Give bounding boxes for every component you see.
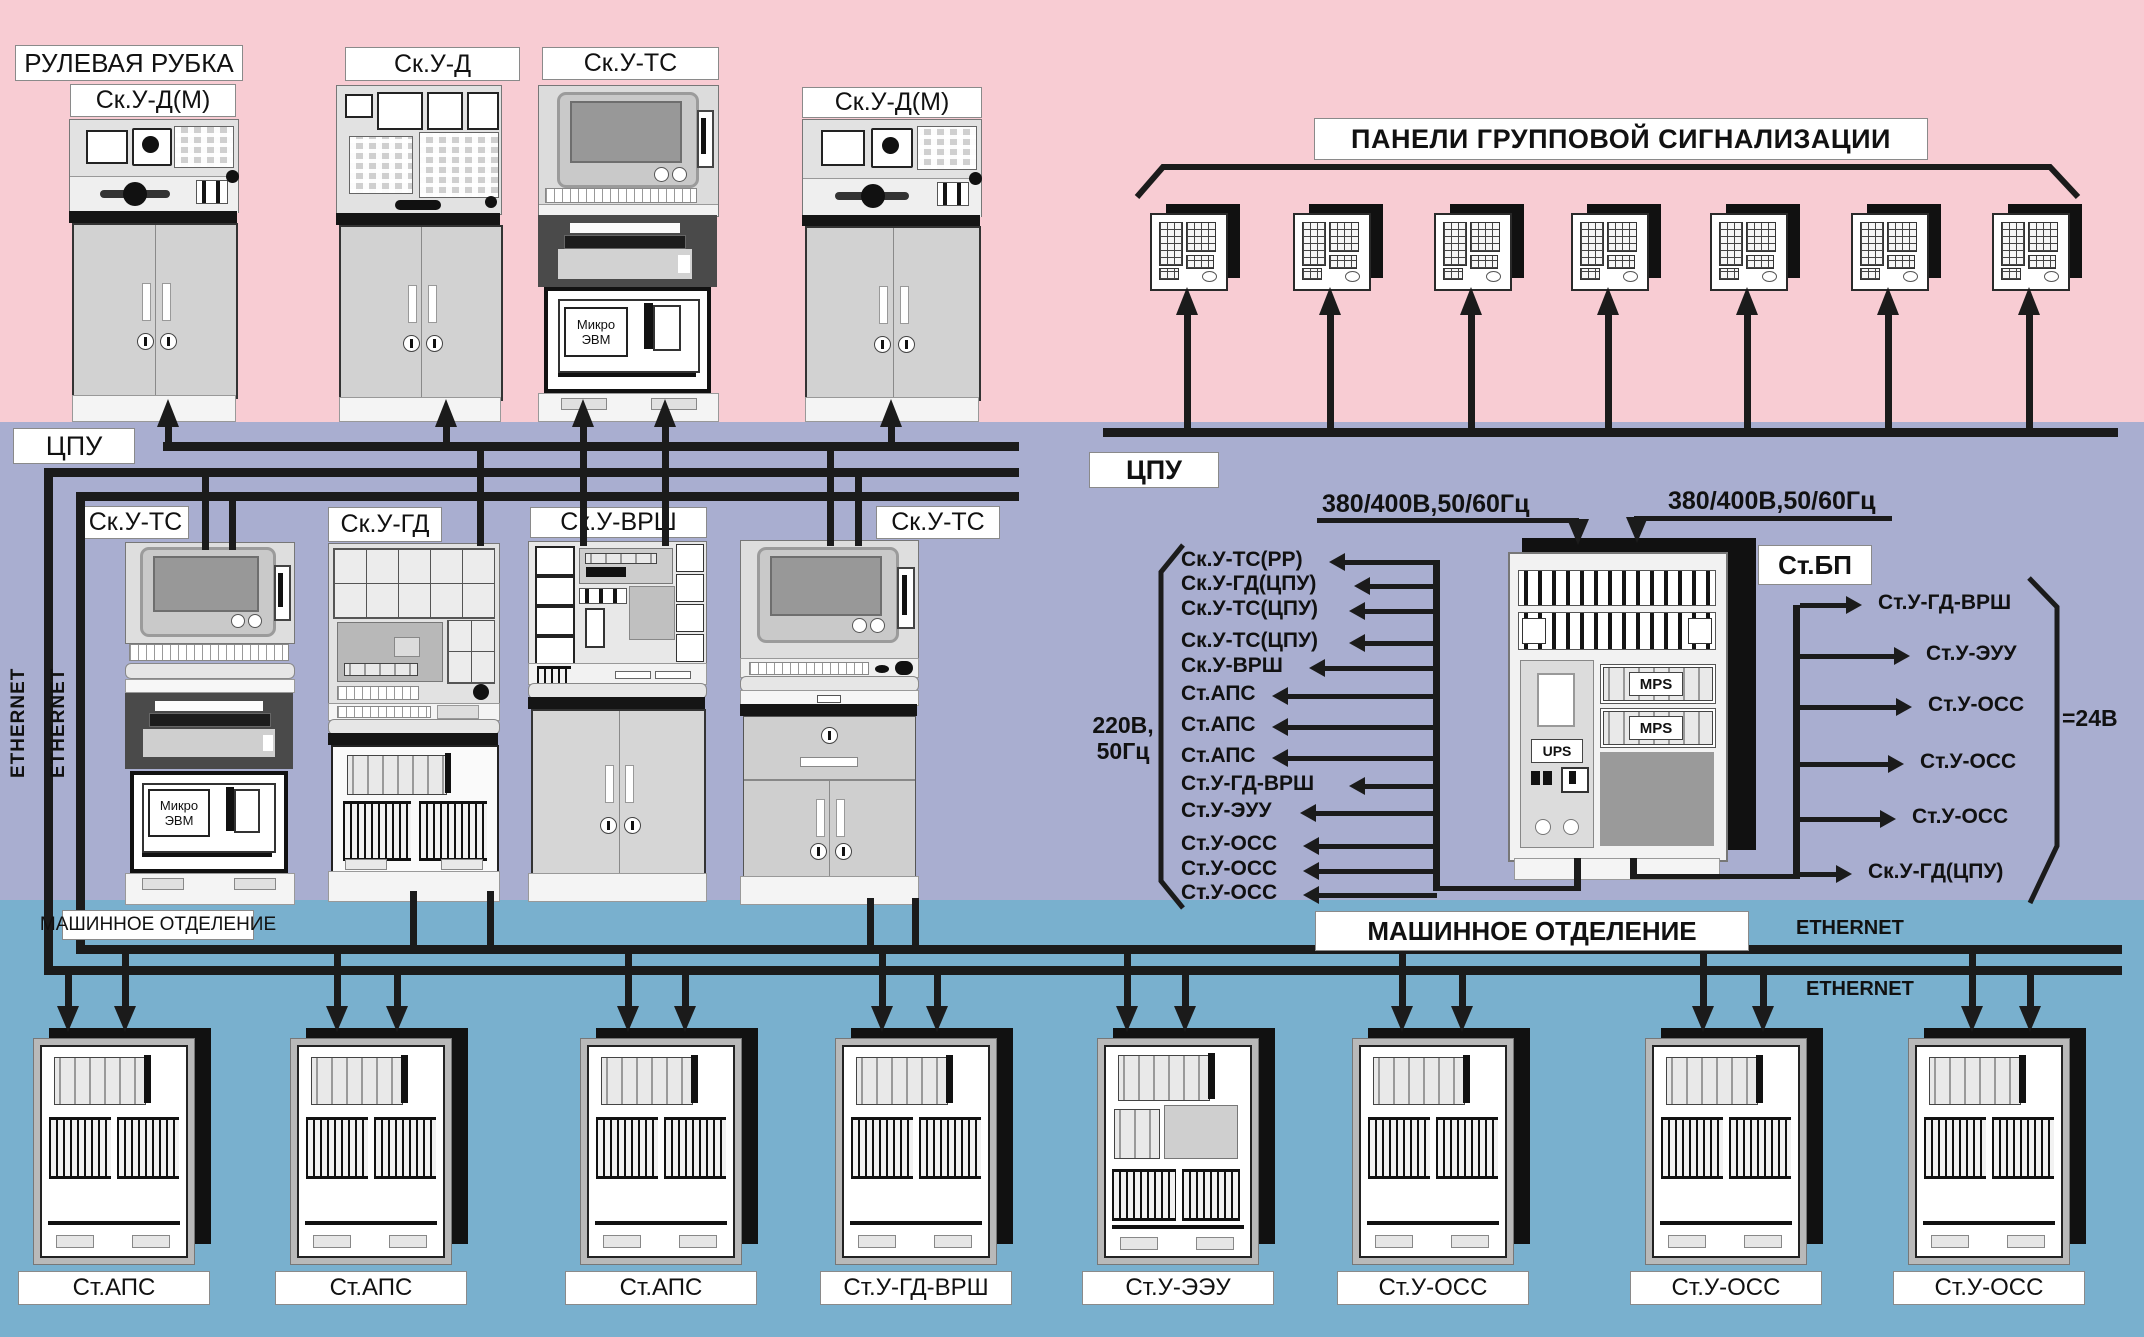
decor-shape — [1762, 271, 1777, 282]
console-sku-ts-cpu-2: Ск.У-ТС — [740, 506, 917, 903]
decor-shape — [1104, 1045, 1252, 1258]
arrow-left-icon — [1300, 804, 1316, 822]
decor-shape — [328, 733, 498, 745]
micro-evm-label: Микро ЭВМ — [148, 789, 210, 837]
decor-shape — [528, 663, 707, 685]
decor-shape — [895, 661, 913, 675]
arrow-left-icon — [1303, 886, 1319, 904]
decor-shape — [337, 686, 419, 700]
breaker-row — [1518, 612, 1716, 650]
decor-shape — [1744, 1235, 1782, 1248]
decor-shape — [1746, 255, 1774, 269]
decor-shape — [1719, 268, 1739, 280]
arrow-up-icon — [1460, 287, 1482, 315]
connector-line — [443, 424, 450, 451]
connector-line — [65, 973, 72, 1006]
decor-shape — [691, 1055, 698, 1103]
decor-shape — [1329, 222, 1359, 252]
arrow-up-icon — [1176, 287, 1198, 315]
wheelhouse-section — [0, 0, 2144, 422]
key-switch-icon — [1688, 618, 1712, 644]
console-label: Ск.У-Д — [345, 47, 520, 81]
console-cabinet — [743, 716, 916, 878]
decor-shape — [528, 873, 707, 902]
arrow-right-icon — [1880, 810, 1896, 828]
decor-shape — [1710, 213, 1788, 291]
decor-shape — [821, 130, 865, 166]
engine-cabinet-7 — [1645, 1028, 1845, 1278]
power-feed-line — [1634, 516, 1892, 521]
ac-voltage-label: 220В, 50Гц — [1086, 712, 1160, 764]
decor-shape — [850, 1221, 982, 1225]
arrow-left-icon — [1354, 577, 1370, 595]
decor-shape — [389, 1235, 427, 1248]
decor-shape — [585, 553, 657, 564]
engine-cabinet-label: Ст.У-ГД-ВРШ — [820, 1271, 1012, 1305]
monitor-screen — [570, 101, 682, 163]
decor-shape — [33, 1038, 195, 1265]
decor-shape — [234, 878, 276, 890]
arrow-down-icon — [114, 1006, 136, 1032]
decor-shape — [1569, 771, 1576, 784]
ac-output-label: Ст.У-ОСС — [1181, 857, 1277, 881]
decor-shape — [125, 873, 295, 905]
connector-line — [662, 442, 669, 546]
arrow-up-icon — [572, 399, 594, 427]
decor-shape — [528, 697, 705, 709]
arrow-up-icon — [1736, 287, 1758, 315]
decor-shape — [290, 1038, 452, 1265]
knob-icon — [969, 172, 982, 185]
alarm-panel-5 — [1710, 204, 1800, 296]
console-rack-cabinet — [331, 745, 499, 875]
rack-unit — [1666, 1057, 1758, 1105]
keyboard-block — [419, 132, 499, 198]
monitor — [557, 92, 699, 188]
decor-shape — [934, 1235, 972, 1248]
indicator — [676, 604, 704, 632]
key-switch-icon — [1522, 618, 1546, 644]
decor-shape — [672, 167, 687, 182]
rack-unit — [1373, 1057, 1465, 1105]
connector-line — [1364, 784, 1437, 789]
decor-shape — [1302, 222, 1326, 266]
connector-line — [625, 951, 632, 1006]
decor-shape — [1563, 819, 1579, 835]
ac-output-label: Ст.У-ЭУУ — [1181, 799, 1272, 823]
decor-shape — [313, 1235, 351, 1248]
engine-cabinet-label: Ст.У-ОСС — [1630, 1271, 1822, 1305]
ac-output-label: Ск.У-ТС(ЦПУ) — [1181, 597, 1318, 621]
engine-cabinet-label: Ст.АПС — [565, 1271, 757, 1305]
console-display-panel — [538, 85, 719, 217]
alarm-panel-7 — [1992, 204, 2082, 296]
engine-cabinet-label: Ст.У-ОСС — [1337, 1271, 1529, 1305]
decor-shape — [467, 92, 499, 130]
decor-shape — [2001, 222, 2025, 266]
arrow-down-icon — [1752, 1006, 1774, 1032]
engine-bus-line-1 — [80, 945, 2122, 954]
connector-line — [487, 891, 494, 951]
card-cage — [664, 1117, 726, 1179]
connector-line — [1287, 694, 1437, 699]
decor-shape — [580, 1038, 742, 1265]
decor-shape — [1931, 1235, 1969, 1248]
connector-line — [1399, 951, 1406, 1006]
arrow-up-icon — [435, 399, 457, 427]
decor-shape — [829, 781, 830, 877]
decor-shape — [1860, 222, 1884, 266]
console-sku-dm-wheelhouse-2: Ск.У-Д(М) — [802, 87, 980, 420]
console-sku-d-wheelhouse: Ск.У-Д — [336, 47, 518, 420]
control-block — [579, 548, 673, 584]
dc-voltage-label: =24В — [2062, 705, 2118, 732]
decor-shape — [2007, 1235, 2045, 1248]
connector-line — [1969, 951, 1976, 1006]
lever-block-icon — [196, 180, 228, 204]
ac-output-label: Ст.У-ГД-ВРШ — [1181, 772, 1314, 796]
decor-shape — [48, 1221, 180, 1225]
decor-shape — [336, 213, 500, 225]
connector-line — [888, 424, 895, 451]
arrow-down-icon — [1116, 1006, 1138, 1032]
arrow-up-icon — [2018, 287, 2040, 315]
decor-shape — [377, 92, 423, 130]
decor-shape — [345, 94, 373, 118]
decor-shape — [654, 167, 669, 182]
dc-output-label: Ст.У-ГД-ВРШ — [1878, 591, 2011, 615]
console-control-panel — [69, 119, 239, 213]
decor-shape — [445, 753, 451, 793]
decor-shape — [1367, 1221, 1499, 1225]
arrow-down-icon — [326, 1006, 348, 1032]
console-cabinet — [72, 223, 238, 399]
console-label: Ск.У-ТС — [82, 506, 189, 539]
rack-unit — [1118, 1055, 1210, 1101]
rack-unit — [1929, 1057, 2021, 1105]
monitor — [140, 547, 276, 637]
connector-line — [682, 973, 689, 1006]
console-cabinet — [805, 226, 981, 401]
connector-line — [1744, 310, 1751, 432]
ethernet-label-cpu-2: ETHERNET — [48, 618, 78, 778]
decor-shape — [1463, 1055, 1470, 1103]
micro-evm-unit: Микро ЭВМ — [130, 771, 288, 873]
decor-shape — [1719, 222, 1743, 266]
monitor-screen — [770, 556, 882, 616]
indicator — [676, 544, 704, 572]
decor-shape — [644, 303, 653, 349]
decor-shape — [234, 789, 260, 833]
decor-shape — [297, 1045, 445, 1258]
decor-shape — [902, 575, 907, 615]
arrow-down-icon — [1391, 1006, 1413, 1032]
console-label: Ск.У-ГД — [328, 507, 442, 542]
card-cage — [1436, 1117, 1498, 1179]
lever-block-icon — [937, 182, 969, 206]
console-sku-gd-cpu: Ск.У-ГД — [328, 505, 498, 900]
micro-evm-unit: Микро ЭВМ — [544, 287, 711, 393]
ac-output-label: Ск.У-ГД(ЦПУ) — [1181, 572, 1316, 596]
card-cage — [919, 1117, 981, 1179]
power-cabinet: UPS MPS MPS — [1508, 552, 1728, 862]
decor-shape — [842, 1045, 990, 1258]
arrow-down-icon — [57, 1006, 79, 1032]
alarm-panel-4 — [1571, 204, 1661, 296]
ac-output-label: Ст.У-ОСС — [1181, 832, 1277, 856]
ac-output-label: Ск.У-ТС(ЦПУ) — [1181, 629, 1318, 653]
decor-shape — [160, 333, 177, 350]
decor-shape — [1851, 213, 1929, 291]
engine-cabinet-label: Ст.У-ЭЭУ — [1082, 1271, 1274, 1305]
decor-shape — [1302, 268, 1322, 280]
decor-shape — [248, 614, 262, 628]
decor-shape — [2019, 1055, 2026, 1103]
decor-shape: ЭВМ — [165, 813, 194, 828]
decor-shape — [2028, 222, 2058, 252]
decor-shape — [428, 285, 437, 323]
decor-shape — [679, 1235, 717, 1248]
decor-shape — [740, 704, 917, 716]
decor-shape — [1543, 771, 1552, 785]
decor-shape — [558, 373, 696, 377]
decor-shape — [535, 576, 575, 606]
decor-shape — [137, 333, 154, 350]
ethernet-label-engine-1: ETHERNET — [1796, 917, 1904, 940]
connector-line — [1437, 886, 1578, 891]
decor-shape — [231, 614, 245, 628]
monitor-screen — [153, 556, 259, 612]
connector-line — [1800, 817, 1880, 822]
decor-shape — [1580, 222, 1604, 266]
console-sku-ts-cpu-1: Ск.У-ТС Микро ЭВМ — [125, 505, 293, 903]
connector-line — [1182, 973, 1189, 1006]
card-cage — [1182, 1169, 1240, 1221]
handwheel-icon — [123, 182, 147, 206]
rack-unit — [601, 1057, 693, 1105]
arrow-down-icon — [871, 1006, 893, 1032]
decor-shape — [1903, 271, 1918, 282]
knob-icon — [473, 684, 489, 700]
connector-line — [1459, 973, 1466, 1006]
engine-cabinet-6 — [1352, 1028, 1552, 1278]
decor-shape — [278, 573, 283, 607]
card-cage — [1661, 1117, 1723, 1179]
rack-unit — [856, 1057, 948, 1105]
decor-shape — [1887, 255, 1915, 269]
dc-output-label: Ст.У-ЭУУ — [1926, 642, 2017, 666]
ups-label: UPS — [1531, 739, 1583, 763]
arrow-up-icon — [1877, 287, 1899, 315]
decor-shape — [852, 618, 867, 633]
engine-bus-line-2 — [48, 966, 2122, 975]
decor-shape — [1164, 1105, 1238, 1159]
decor-shape — [946, 1055, 953, 1103]
decor-shape — [564, 235, 686, 249]
arrow-down-icon — [1692, 1006, 1714, 1032]
connector-line — [1324, 666, 1437, 671]
decor-shape — [586, 567, 626, 577]
card-cage — [306, 1117, 368, 1179]
arrow-down-icon — [1174, 1006, 1196, 1032]
decor-shape — [2001, 268, 2021, 280]
decor-shape — [1623, 271, 1638, 282]
ac-output-label: Ст.АПС — [1181, 713, 1256, 737]
console-sku-dm-wheelhouse-1: Ск.У-Д(М) — [69, 84, 237, 420]
connector-line — [1344, 560, 1437, 565]
connector-line — [1364, 641, 1437, 646]
card-cage — [117, 1117, 179, 1179]
connector-line — [855, 468, 862, 546]
decor-shape — [858, 1235, 896, 1248]
decor-shape — [629, 586, 675, 640]
card-cage — [1992, 1117, 2054, 1179]
cpu-bus-line-3 — [80, 492, 1019, 501]
arrow-down-icon — [1451, 1006, 1473, 1032]
decor-shape — [585, 608, 605, 648]
decor-shape — [1660, 1221, 1792, 1225]
decor-shape — [653, 305, 681, 351]
decor-shape — [1580, 268, 1600, 280]
ac-output-label: Ск.У-ТС(РР) — [1181, 548, 1303, 572]
console-control-panel — [336, 85, 502, 215]
alarm-panel-2 — [1293, 204, 1383, 296]
engine-cabinet-label: Ст.У-ОСС — [1893, 1271, 2085, 1305]
arrow-down-icon — [617, 1006, 639, 1032]
arrow-down-icon — [1626, 517, 1648, 543]
arrow-up-icon — [157, 399, 179, 427]
arrow-up-icon — [1319, 287, 1341, 315]
decor-shape — [1470, 255, 1498, 269]
keyboard — [545, 188, 697, 203]
console-cabinet — [339, 225, 503, 401]
decor-shape — [1443, 222, 1467, 266]
decor-shape — [879, 286, 888, 324]
decor-shape — [345, 859, 387, 870]
connector-line — [229, 492, 236, 550]
button-block — [174, 126, 234, 168]
mps-module-2: MPS — [1600, 708, 1716, 748]
decor-shape — [535, 546, 575, 576]
engine-room-label-big: МАШИННОЕ ОТДЕЛЕНИЕ — [1315, 911, 1749, 951]
decor-shape — [570, 223, 680, 233]
dc-output-label: Ст.У-ОСС — [1912, 805, 2008, 829]
console-control-panel — [802, 119, 982, 217]
mps-module-1: MPS — [1600, 664, 1716, 704]
decor-shape — [144, 1055, 151, 1103]
decor-shape — [1202, 271, 1217, 282]
decor-shape — [1208, 1053, 1215, 1099]
alarm-panel-3 — [1434, 204, 1524, 296]
decor-shape — [162, 283, 171, 321]
decor-shape — [1329, 255, 1357, 269]
decor-shape — [56, 1235, 94, 1248]
alarm-panel-6 — [1851, 204, 1941, 296]
dc-output-label: Ст.У-ОСС — [1928, 693, 2024, 717]
decor-shape — [1451, 1235, 1489, 1248]
arrow-right-icon — [1894, 647, 1910, 665]
decor-shape — [740, 658, 919, 678]
decor-shape — [125, 663, 295, 679]
decor-shape — [678, 255, 690, 273]
decor-shape — [132, 1235, 170, 1248]
monitor — [757, 547, 899, 643]
connector-line — [912, 898, 919, 951]
engine-cabinet-5 — [1097, 1028, 1297, 1278]
printer-niche — [538, 215, 717, 287]
decor-shape — [401, 1055, 408, 1103]
decor-shape — [835, 1038, 997, 1265]
decor-shape: Микро — [160, 798, 198, 813]
connector-line — [1605, 310, 1612, 432]
dc-trunk-line — [1793, 605, 1800, 879]
decor-shape — [394, 637, 420, 657]
connector-line — [1318, 869, 1437, 874]
handwheel-icon — [395, 200, 441, 210]
arrow-down-icon — [1961, 1006, 1983, 1032]
connector-line — [165, 424, 172, 451]
decor-shape — [1470, 222, 1500, 252]
decor-shape — [1196, 1237, 1234, 1250]
decor-shape — [535, 636, 575, 666]
decor-shape — [1535, 819, 1551, 835]
arrow-up-icon — [654, 399, 676, 427]
console-control-panel — [328, 543, 500, 705]
printer-niche — [125, 693, 293, 769]
connector-line — [1630, 858, 1637, 879]
decor-shape — [1434, 213, 1512, 291]
connector-line — [580, 442, 587, 546]
decor-shape — [69, 211, 237, 223]
card-cage — [49, 1117, 111, 1179]
decor-shape — [426, 335, 443, 352]
decor-shape — [441, 859, 483, 870]
ethernet-label-cpu-1: ETHERNET — [8, 618, 38, 778]
ac-output-label: Ск.У-ВРШ — [1181, 654, 1283, 678]
knob-icon — [485, 196, 497, 208]
decor-shape — [1645, 1038, 1807, 1265]
decor-shape — [1159, 222, 1183, 266]
card-cage — [1368, 1117, 1430, 1179]
decor-shape: 50Гц — [1086, 738, 1160, 764]
ac-output-label: Ст.АПС — [1181, 682, 1256, 706]
connector-line — [202, 470, 209, 550]
decor-shape — [1150, 213, 1228, 291]
decor-shape — [800, 757, 858, 767]
decor-shape — [1537, 673, 1575, 727]
decor-shape — [816, 799, 825, 837]
card-cage — [596, 1117, 658, 1179]
decor-shape — [1375, 1235, 1413, 1248]
decor-shape — [810, 843, 827, 860]
rack-unit — [54, 1057, 146, 1105]
connector-line — [1318, 844, 1437, 849]
arrow-left-icon — [1309, 659, 1325, 677]
arrow-down-icon — [386, 1006, 408, 1032]
engine-cabinet-8 — [1908, 1028, 2108, 1278]
card-cage — [851, 1117, 913, 1179]
knob-icon — [226, 170, 239, 183]
breaker-row — [1518, 570, 1716, 606]
connector-line — [1124, 951, 1131, 1006]
connector-line — [827, 444, 834, 546]
decor-shape — [595, 1221, 727, 1225]
arrow-left-icon — [1272, 718, 1288, 736]
feed-voltage-label-left: 380/400В,50/60Гц — [1322, 490, 1529, 519]
console-display-panel — [125, 542, 295, 644]
decor-shape — [1600, 752, 1714, 846]
connector-line — [1315, 811, 1437, 816]
